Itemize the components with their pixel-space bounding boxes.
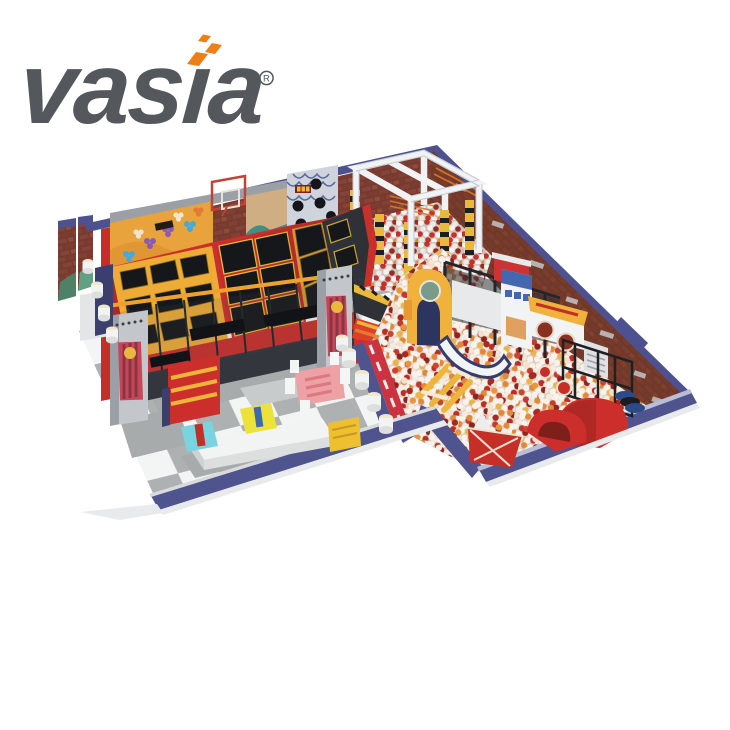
svg-text:R: R bbox=[263, 74, 270, 85]
svg-text:vasıa: vasıa bbox=[16, 31, 267, 145]
